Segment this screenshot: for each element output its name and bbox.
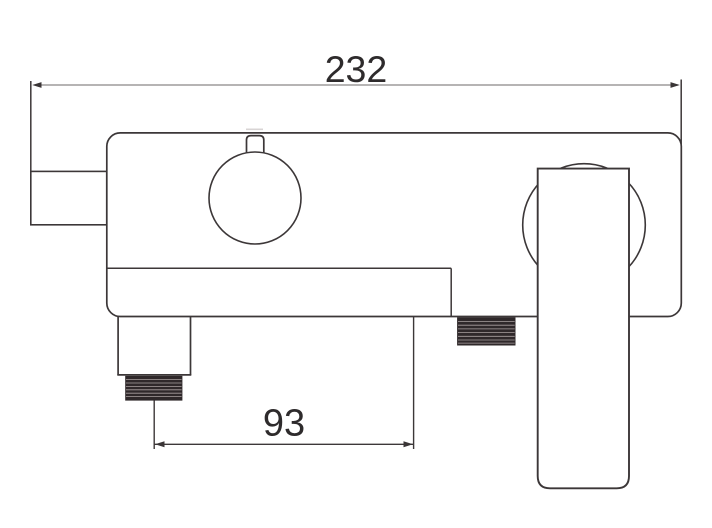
svg-text:232: 232 — [325, 48, 388, 90]
svg-text:93: 93 — [263, 403, 305, 445]
